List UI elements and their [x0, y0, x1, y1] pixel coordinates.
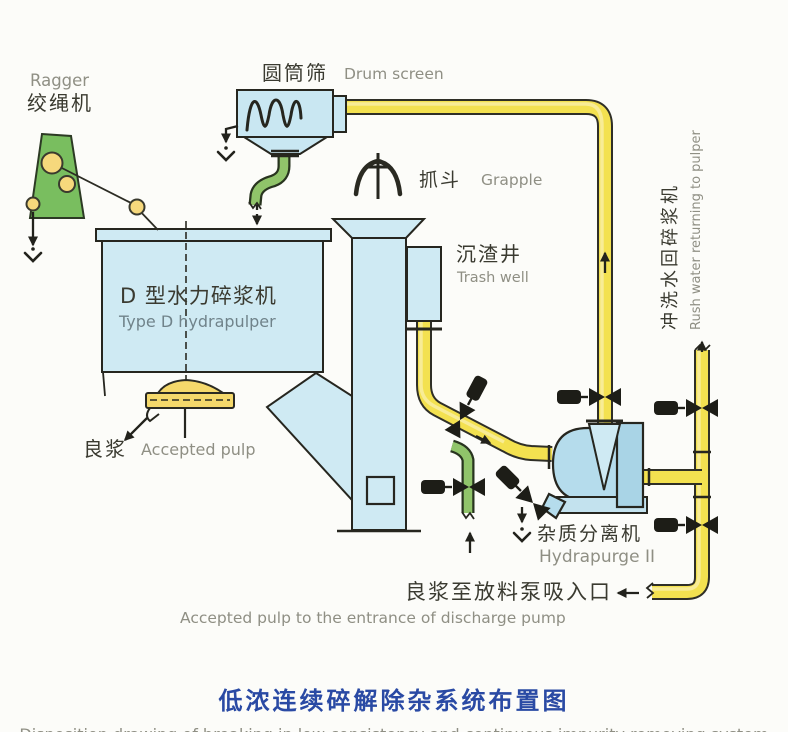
ragger-label-zh: 绞绳机 [27, 91, 93, 115]
hydrapurge-label-en: Hydrapurge II [539, 547, 655, 567]
pulper-rim [96, 229, 331, 241]
trash-well-side-box [407, 247, 441, 321]
drum-screen-flange [333, 96, 346, 132]
ragger-label-en: Ragger [30, 71, 89, 90]
grapple-label-en: Grapple [481, 171, 542, 189]
hydrapulper-label-en: Type D hydrapulper [118, 312, 276, 331]
trash-well-label-zh: 沉渣井 [456, 242, 522, 266]
ragger-pulley [27, 198, 40, 211]
hydrapurge-end-cap [617, 423, 643, 507]
drum-screen-body [237, 90, 333, 137]
hydrapulper-label-zh: D 型水力碎浆机 [120, 284, 277, 308]
diagram-title-zh: 低浓连续碎解除杂系统布置图 [218, 687, 570, 715]
flush-water-label-zh: 冲洗水回碎浆机 [660, 183, 681, 330]
accepted-pulp-label-en: Accepted pulp [141, 440, 256, 459]
drum-screen-label-en: Drum screen [344, 65, 444, 83]
ragger-pulley [42, 153, 63, 174]
trash-well-label-en: Trash well [456, 270, 529, 286]
rope-guide-pulley [130, 200, 145, 215]
process-diagram: Ragger 绞绳机 圆筒筛 Drum screen 抓斗 Grapple 沉渣… [0, 0, 788, 732]
diagram-title-en: Disposition drawing of breaking in low c… [19, 725, 768, 732]
ragger-pulley [59, 176, 75, 192]
discharge-label-zh: 良浆至放料泵吸入口 [405, 580, 612, 604]
accepted-pulp-label-zh: 良浆 [83, 437, 127, 461]
grapple-label-zh: 抓斗 [419, 169, 461, 191]
drum-screen-label-zh: 圆筒筛 [262, 61, 328, 85]
flush-water-label-en: Rush water returning to pulper [689, 129, 704, 330]
diagram-canvas: Ragger 绞绳机 圆筒筛 Drum screen 抓斗 Grapple 沉渣… [0, 0, 788, 732]
trash-well-column [352, 238, 406, 530]
discharge-label-en: Accepted pulp to the entrance of dischar… [180, 609, 566, 627]
hydrapurge-label-zh: 杂质分离机 [537, 523, 642, 545]
